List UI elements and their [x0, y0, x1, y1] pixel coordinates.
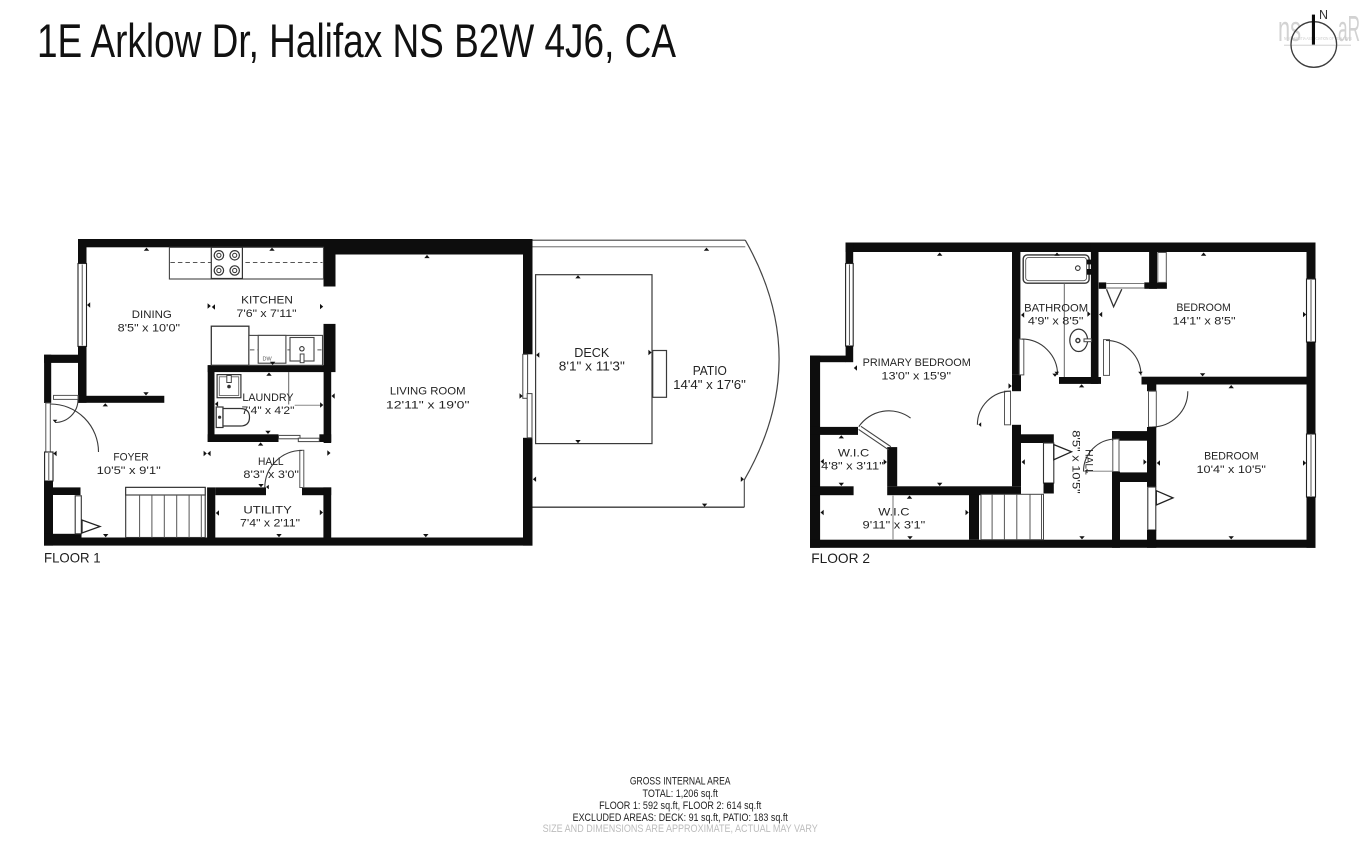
svg-text:1E Arklow Dr, Halifax NS B2W 4: 1E Arklow Dr, Halifax NS B2W 4J6, CA: [37, 15, 676, 68]
svg-text:8'5" x 10'0": 8'5" x 10'0": [118, 323, 181, 335]
svg-text:BEDROOM: BEDROOM: [1204, 451, 1259, 463]
svg-text:UTILITY: UTILITY: [243, 505, 292, 517]
svg-text:7'6" x 7'11": 7'6" x 7'11": [237, 308, 297, 320]
svg-text:7'4" x 4'2": 7'4" x 4'2": [242, 405, 295, 417]
svg-text:13'0" x 15'9": 13'0" x 15'9": [881, 371, 951, 383]
svg-text:FLOOR 1: FLOOR 1: [44, 550, 101, 566]
svg-text:7'4" x 2'11": 7'4" x 2'11": [240, 517, 300, 529]
svg-text:KITCHEN: KITCHEN: [241, 295, 293, 307]
svg-text:LIVING ROOM: LIVING ROOM: [390, 386, 466, 398]
svg-text:aR: aR: [1338, 8, 1360, 49]
svg-text:W.I.C: W.I.C: [838, 448, 869, 460]
svg-text:9'11" x 3'1": 9'11" x 3'1": [863, 519, 926, 531]
svg-text:HALL: HALL: [258, 456, 284, 468]
svg-text:4'8" x 3'11": 4'8" x 3'11": [821, 461, 884, 473]
svg-text:DINING: DINING: [132, 309, 172, 321]
svg-text:SIZE AND DIMENSIONS ARE APPROX: SIZE AND DIMENSIONS ARE APPROXIMATE, ACT…: [543, 823, 818, 835]
svg-text:FOYER: FOYER: [113, 452, 148, 464]
svg-text:TOTAL: 1,206 sq.ft: TOTAL: 1,206 sq.ft: [643, 788, 718, 800]
svg-text:14'4" x 17'6": 14'4" x 17'6": [673, 377, 746, 392]
svg-text:DW: DW: [263, 357, 273, 363]
svg-text:N: N: [1319, 8, 1328, 22]
svg-text:8'1" x 11'3": 8'1" x 11'3": [559, 359, 625, 374]
svg-text:GROSS INTERNAL AREA: GROSS INTERNAL AREA: [630, 776, 731, 788]
svg-text:BEDROOM: BEDROOM: [1176, 302, 1231, 314]
svg-text:8'5" x 10'5": 8'5" x 10'5": [1070, 430, 1082, 494]
svg-text:W.I.C: W.I.C: [878, 507, 909, 519]
svg-text:HALL: HALL: [1083, 449, 1095, 475]
svg-text:14'1" x 8'5": 14'1" x 8'5": [1173, 316, 1236, 328]
svg-text:LAUNDRY: LAUNDRY: [242, 392, 294, 404]
svg-text:FLOOR 2: FLOOR 2: [811, 550, 870, 566]
svg-text:EXCLUDED AREAS: DECK: 91 sq.ft: EXCLUDED AREAS: DECK: 91 sq.ft, PATIO: 1…: [573, 812, 788, 824]
svg-text:4'9" x 8'5": 4'9" x 8'5": [1028, 316, 1084, 328]
svg-text:12'11" x 19'0": 12'11" x 19'0": [386, 400, 470, 412]
svg-text:8'3" x 3'0": 8'3" x 3'0": [243, 469, 299, 481]
svg-text:BATHROOM: BATHROOM: [1024, 303, 1088, 315]
svg-text:NOVA SCOTIA ASSOCIATION OF REA: NOVA SCOTIA ASSOCIATION OF REALTORS: [1284, 36, 1352, 41]
svg-text:PATIO: PATIO: [693, 363, 727, 378]
svg-text:PRIMARY BEDROOM: PRIMARY BEDROOM: [863, 357, 971, 369]
svg-text:10'4" x 10'5": 10'4" x 10'5": [1197, 464, 1267, 476]
svg-text:FLOOR 1: 592 sq.ft, FLOOR 2: 6: FLOOR 1: 592 sq.ft, FLOOR 2: 614 sq.ft: [599, 800, 761, 812]
svg-text:10'5" x 9'1": 10'5" x 9'1": [97, 465, 161, 477]
